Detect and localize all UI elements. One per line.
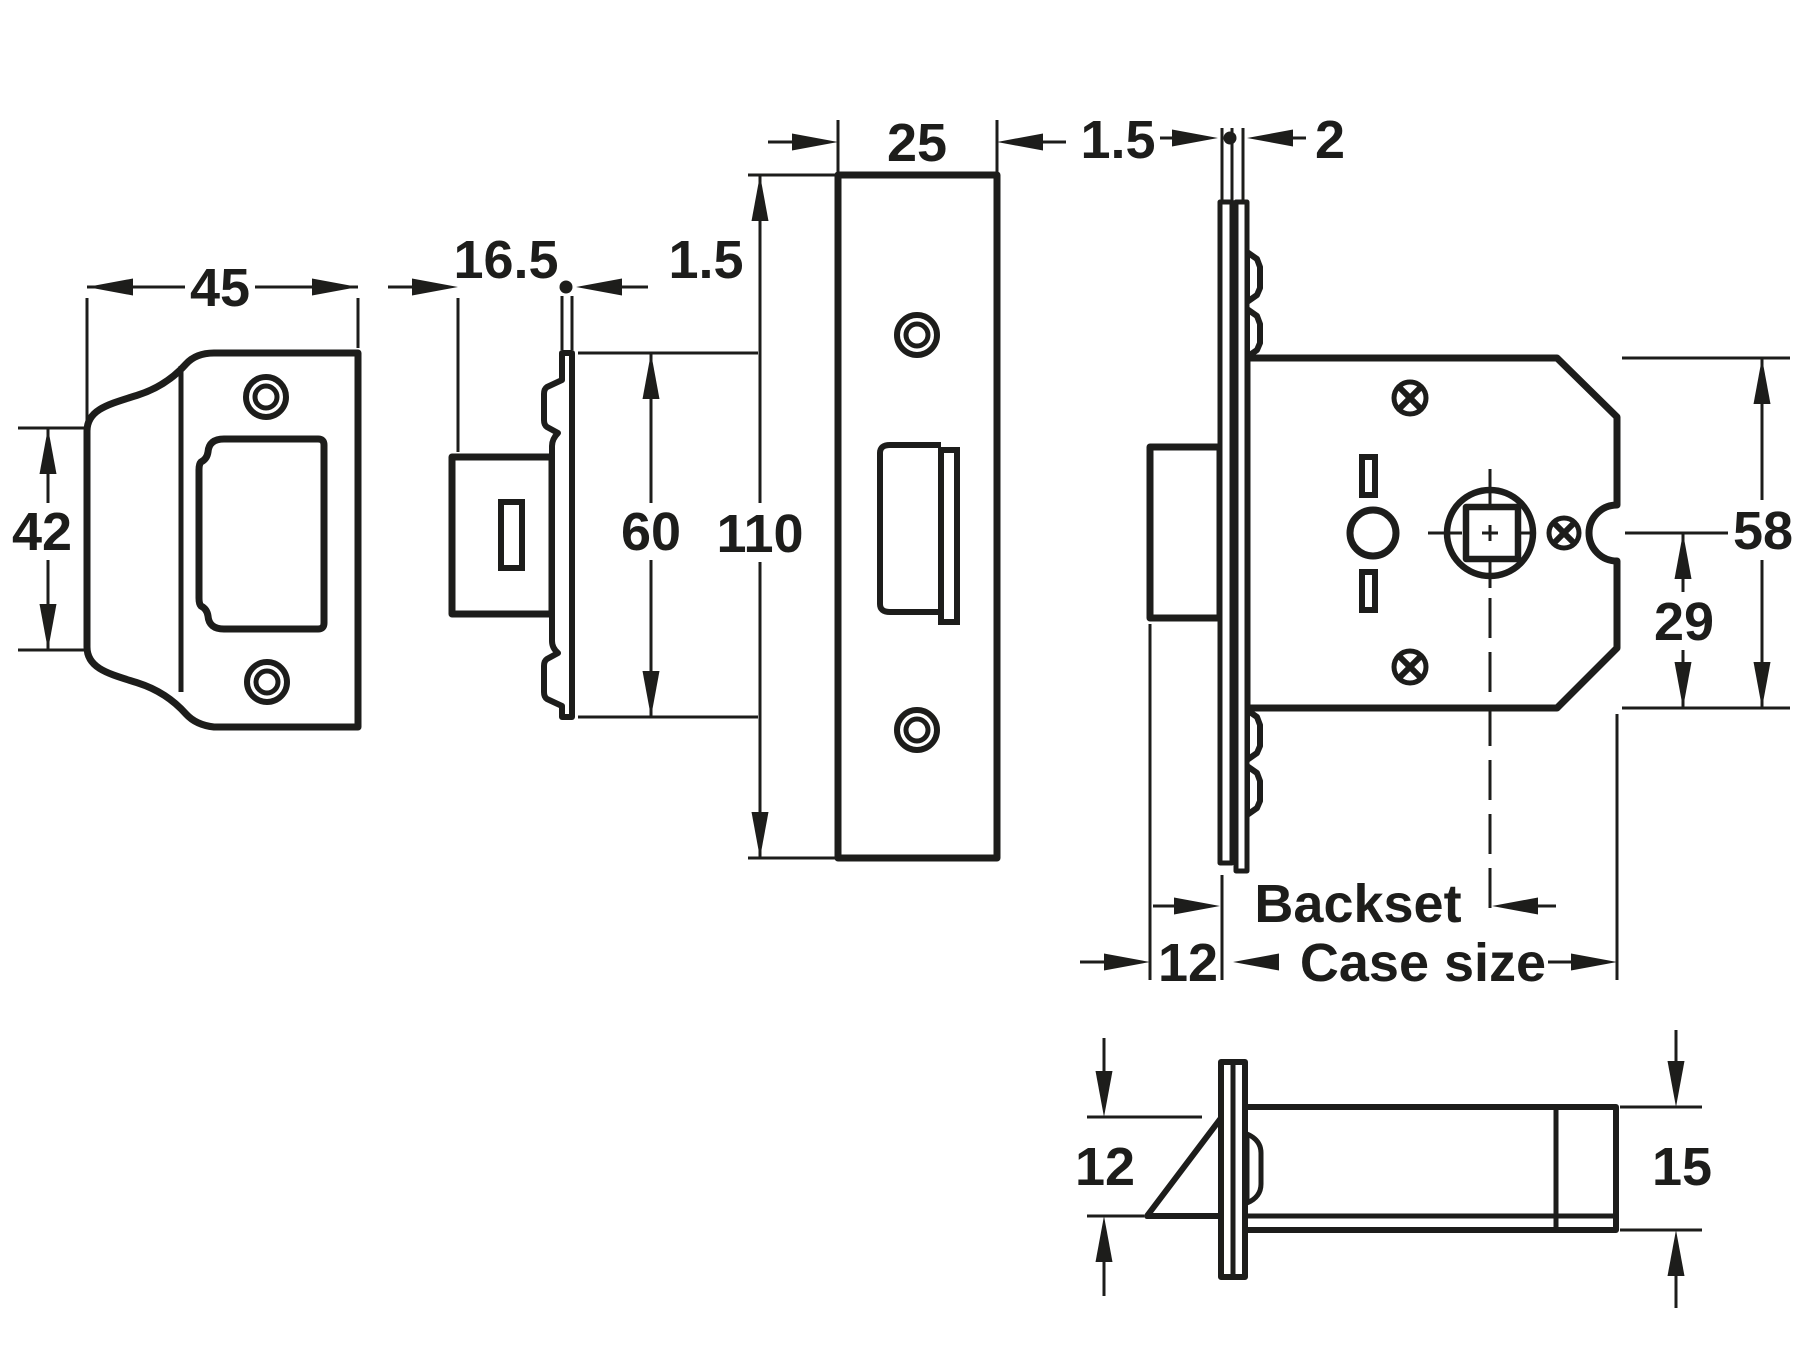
dim-strike-height: 60 — [621, 502, 681, 562]
arrow-icon — [792, 134, 838, 151]
dim-point-icon — [1224, 132, 1237, 145]
arrow-icon — [1096, 1071, 1113, 1117]
dim-forend-height: 110 — [716, 504, 803, 564]
latch-bolt-side — [1150, 447, 1220, 618]
view-latch-bolt-bottom: 12 15 — [1075, 1030, 1712, 1308]
dim-case-size-label: Case size — [1300, 933, 1546, 993]
arrow-icon — [1668, 1230, 1685, 1276]
arrow-icon — [1571, 954, 1617, 971]
arrow-icon — [1233, 954, 1279, 971]
dim-bolt-height: 12 — [1075, 1137, 1135, 1197]
cover-plate — [1236, 202, 1247, 871]
arrow-icon — [643, 671, 660, 717]
technical-drawing: 45 42 16.5 1.5 60 — [0, 0, 1800, 1350]
dim-strike-plate-thickness: 1.5 — [668, 230, 743, 290]
arrow-icon — [1096, 1216, 1113, 1262]
arrow-icon — [40, 428, 57, 474]
dim-strike-depth: 16.5 — [453, 230, 558, 290]
arrow-icon — [1754, 662, 1771, 708]
arrow-icon — [40, 604, 57, 650]
arrow-icon — [412, 279, 458, 296]
view-strike-plate-front: 45 42 — [12, 258, 358, 727]
arrow-icon — [1247, 130, 1293, 147]
dim-case-height: 58 — [1733, 501, 1793, 561]
arrow-icon — [752, 175, 769, 221]
strike-plate-outline — [87, 353, 358, 727]
arrow-icon — [1668, 1061, 1685, 1107]
case-bottom-outline — [1245, 1107, 1616, 1230]
dim-backset-label: Backset — [1254, 874, 1461, 934]
drawing-canvas: 45 42 16.5 1.5 60 — [0, 0, 1800, 1350]
view-strike-plate-side: 16.5 1.5 60 — [388, 230, 758, 717]
arrow-icon — [1492, 898, 1538, 915]
bolt-clip — [1247, 1134, 1261, 1203]
arrow-icon — [997, 134, 1043, 151]
view-forend-front: 25 110 — [716, 113, 1066, 858]
arrow-icon — [312, 279, 358, 296]
dim-point-icon — [560, 281, 573, 294]
arrow-icon — [1104, 954, 1150, 971]
dim-forend-width: 25 — [887, 113, 947, 173]
arrow-icon — [1174, 898, 1220, 915]
view-lock-case-side: 1.5 2 58 29 Backset 12 Case size — [1080, 110, 1793, 993]
arrow-icon — [576, 279, 622, 296]
bolt-bevel-triangle — [1147, 1118, 1221, 1216]
dim-cover-plate-thickness: 2 — [1315, 110, 1345, 170]
dim-strike-width: 45 — [190, 258, 250, 318]
arrow-icon — [752, 812, 769, 858]
arrow-icon — [1172, 130, 1218, 147]
dim-case-depth: 15 — [1652, 1137, 1712, 1197]
dim-bolt-projection: 12 — [1158, 933, 1218, 993]
arrow-icon — [1675, 533, 1692, 579]
arrow-icon — [87, 279, 133, 296]
faceplate — [1220, 202, 1232, 863]
dim-faceplate-thickness: 1.5 — [1080, 110, 1155, 170]
forend-outline — [838, 175, 997, 858]
dim-strike-box-height: 42 — [12, 502, 72, 562]
dim-follower-to-bottom: 29 — [1654, 592, 1714, 652]
arrow-icon — [643, 353, 660, 399]
arrow-icon — [1675, 662, 1692, 708]
arrow-icon — [1754, 358, 1771, 404]
